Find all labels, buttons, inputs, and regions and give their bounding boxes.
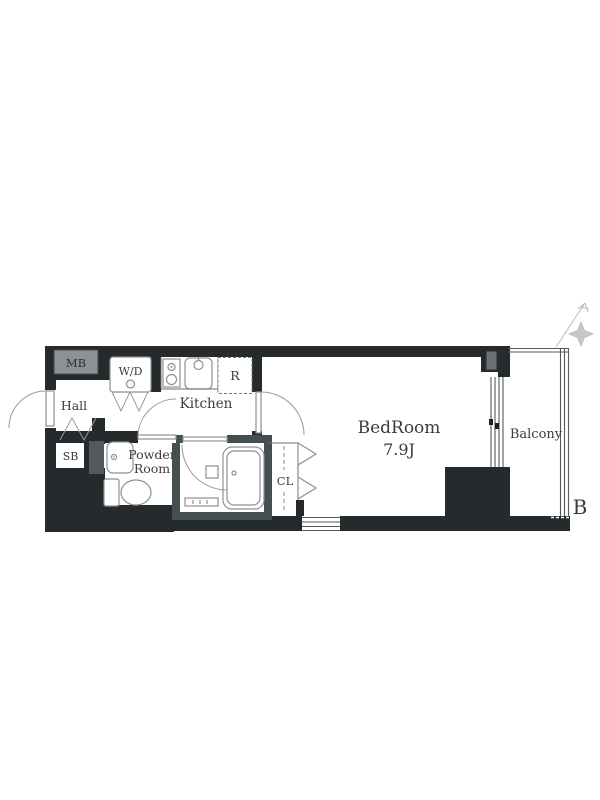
washer-dryer-bifold-door: [112, 392, 148, 411]
refrigerator-label: R: [230, 368, 240, 383]
entrance-door: [9, 391, 54, 428]
stove-icon: [163, 359, 180, 387]
shoe-box-label: SB: [63, 450, 79, 463]
closet-bifold-door-top: [298, 443, 316, 465]
bedroom-label: BedRoom: [358, 418, 441, 438]
floorplan-canvas: MB W/D R Kitchen Hall SB Powder Room CL …: [0, 0, 600, 800]
toilet-icon: [104, 479, 151, 506]
pipe-space-bar: [89, 441, 104, 474]
section-mark-b: B: [573, 495, 588, 519]
closet-label: CL: [277, 474, 294, 488]
washer-dryer-label: W/D: [119, 365, 143, 378]
kitchen-label: Kitchen: [180, 396, 233, 412]
meter-box-label: MB: [66, 356, 86, 370]
hall-label: Hall: [61, 398, 87, 413]
pipe-space-top-right: [486, 351, 497, 370]
powder-room-label-line2: Room: [134, 461, 170, 476]
closet-bifold-door-bottom: [298, 477, 316, 499]
powder-room-label-line1: Powder: [128, 447, 176, 462]
bedroom-door: [256, 392, 304, 435]
bedroom-size-label: 7.9J: [383, 440, 415, 459]
balcony-label: Balcony: [510, 427, 563, 442]
north-arrow-icon: [556, 303, 593, 347]
kitchen-sink-icon: [185, 357, 212, 389]
floorplan-drawing: MB W/D R Kitchen Hall SB Powder Room CL …: [0, 0, 600, 800]
